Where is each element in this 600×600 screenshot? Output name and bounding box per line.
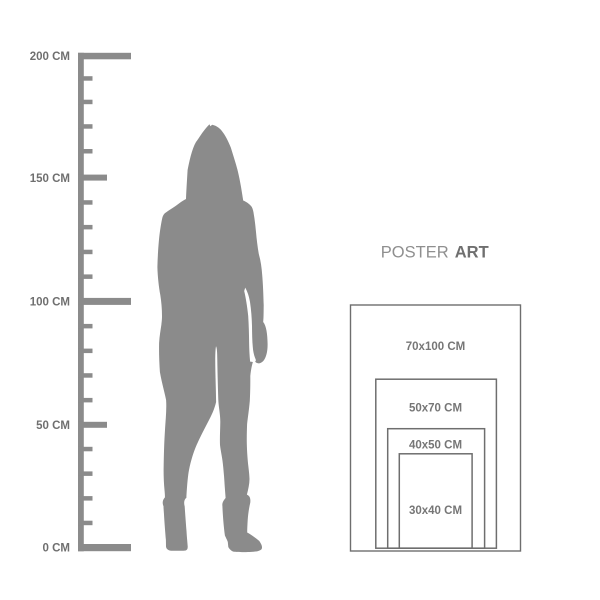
svg-text:40x50 CM: 40x50 CM [409, 440, 462, 452]
svg-text:30x40 CM: 30x40 CM [409, 505, 462, 517]
svg-text:150 CM: 150 CM [30, 173, 70, 185]
svg-text:100 CM: 100 CM [30, 297, 70, 309]
svg-text:200 CM: 200 CM [30, 51, 70, 63]
svg-text:0 CM: 0 CM [43, 543, 70, 555]
svg-text:70x100 CM: 70x100 CM [406, 341, 465, 353]
svg-text:50 CM: 50 CM [36, 420, 70, 432]
svg-text:50x70 CM: 50x70 CM [409, 402, 462, 414]
svg-text:POSTER ART: POSTER ART [381, 244, 489, 262]
